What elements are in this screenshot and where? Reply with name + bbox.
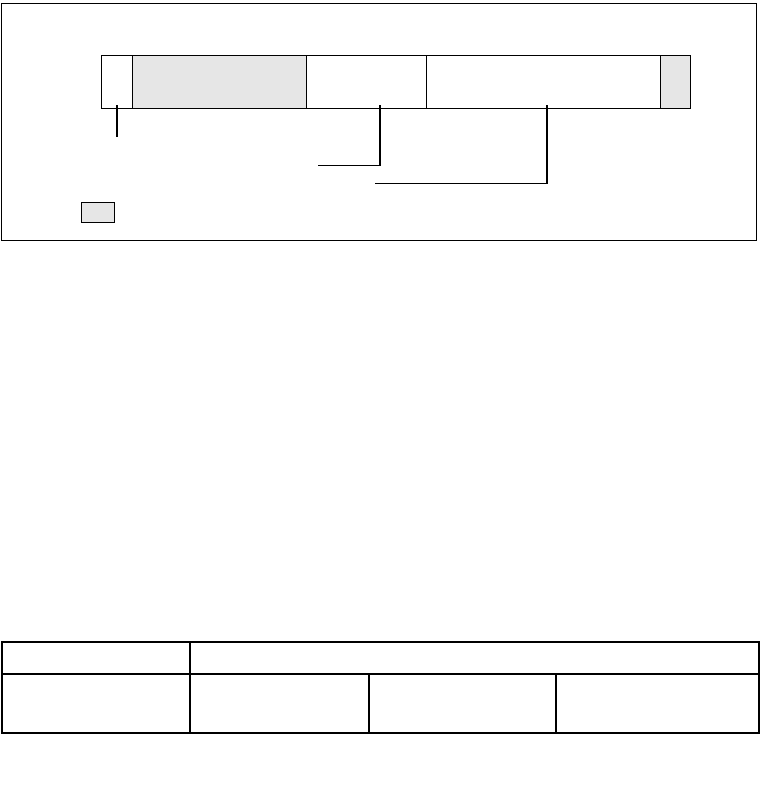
bar-segment-1: [102, 56, 132, 108]
callout-2-vertical-line: [379, 105, 381, 166]
table-row-1: [2, 642, 759, 674]
callout-3-horizontal-line: [375, 183, 548, 185]
legend-swatch: [81, 202, 115, 223]
document-page: [0, 0, 760, 807]
callout-2-horizontal-line: [318, 165, 381, 167]
callout-3-vertical-line: [546, 105, 548, 184]
callout-1-vertical-line: [116, 105, 118, 137]
summary-table: [1, 641, 760, 734]
bar-segment-5: [660, 56, 690, 108]
table-row-2: [2, 674, 759, 733]
bar-segment-4: [426, 56, 660, 108]
field-bar: [101, 55, 691, 109]
bar-segment-3: [306, 56, 426, 108]
table-row2-cell-1: [2, 674, 190, 733]
table-row2-cell-2: [190, 674, 369, 733]
bar-segment-2: [132, 56, 306, 108]
table-row2-cell-3: [369, 674, 556, 733]
table-row1-cell-1: [2, 642, 190, 674]
table-row2-cell-4: [556, 674, 759, 733]
table-row1-cell-2: [190, 642, 759, 674]
